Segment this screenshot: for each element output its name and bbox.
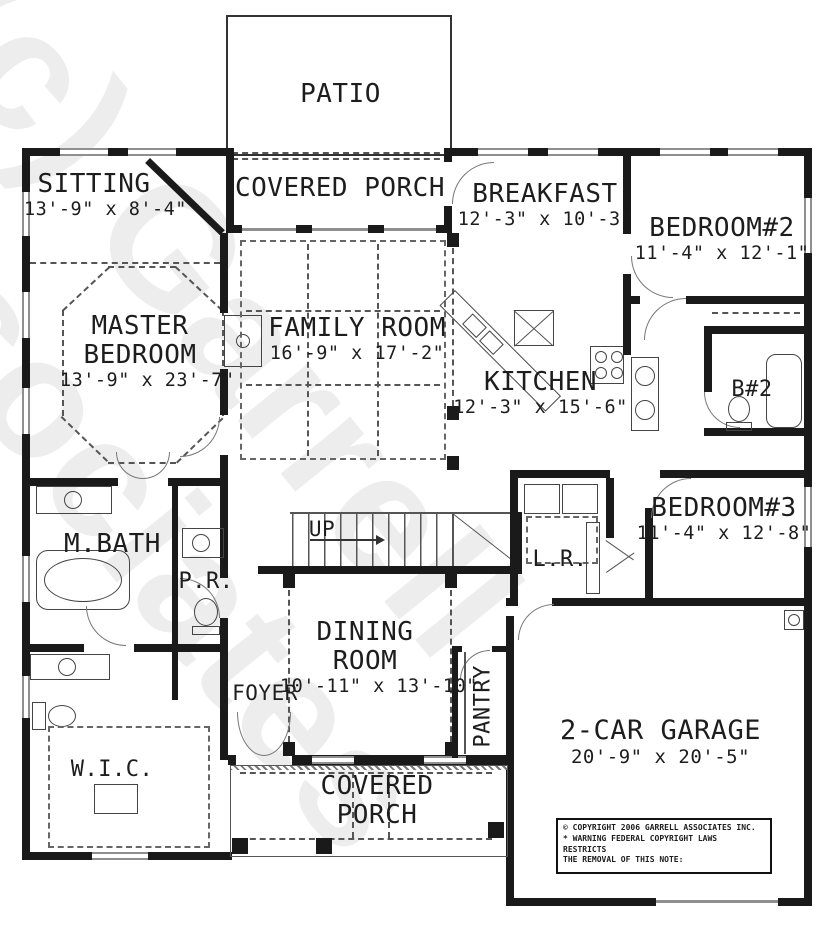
wall bbox=[631, 296, 640, 304]
room-label-breakfast: BREAKFAST12'-3" x 10'-3" bbox=[455, 180, 635, 231]
porch-edge-dash bbox=[232, 152, 450, 154]
window bbox=[22, 292, 30, 338]
stair-direction-arrow bbox=[376, 535, 385, 545]
column bbox=[447, 233, 459, 247]
window bbox=[478, 148, 528, 156]
wic-island bbox=[94, 784, 138, 814]
wall bbox=[686, 296, 805, 304]
wall bbox=[22, 478, 118, 486]
toilet bbox=[194, 598, 218, 626]
column bbox=[447, 456, 459, 470]
wall bbox=[704, 334, 712, 392]
sink bbox=[635, 366, 655, 386]
wall bbox=[552, 598, 812, 606]
room-label-sitting: SITTING13'-9" x 8'-4" bbox=[24, 170, 164, 221]
room-label-covered-porch-top: COVERED PORCH bbox=[230, 174, 450, 203]
wall bbox=[220, 618, 228, 760]
toilet bbox=[48, 705, 76, 727]
sink bbox=[192, 534, 210, 552]
room-label-family-room: FAMILY ROOM16'-9" x 17'-2" bbox=[252, 314, 462, 365]
garage-fixture bbox=[788, 614, 800, 626]
window bbox=[660, 148, 710, 156]
toilet bbox=[32, 702, 46, 730]
wall bbox=[22, 148, 30, 860]
copyright-line: THE REMOVAL OF THIS NOTE: bbox=[563, 855, 765, 866]
wall bbox=[704, 428, 805, 436]
column bbox=[226, 225, 242, 233]
porch-dash bbox=[240, 838, 492, 840]
room-label-patio: PATIO bbox=[283, 80, 398, 109]
floor-plan: (c) Garrell Associates bbox=[0, 0, 834, 931]
room-label-laundry: L.R. bbox=[528, 548, 592, 573]
french-door bbox=[242, 228, 296, 231]
sink bbox=[635, 400, 655, 420]
room-label-dining: DINING ROOM10'-11" x 13'-10" bbox=[280, 618, 450, 698]
door-arc bbox=[644, 298, 686, 340]
window bbox=[92, 852, 148, 860]
wall bbox=[506, 598, 518, 606]
bathtub bbox=[44, 558, 122, 602]
washer-dryer bbox=[562, 484, 598, 514]
room-label-bath2: B#2 bbox=[722, 378, 782, 403]
column bbox=[296, 225, 312, 233]
wall bbox=[258, 566, 522, 574]
window bbox=[312, 756, 354, 764]
kitchen-sink bbox=[479, 330, 504, 355]
wall bbox=[510, 478, 518, 598]
wall bbox=[452, 646, 458, 758]
wall bbox=[506, 898, 656, 906]
room-label-pantry: PANTRY bbox=[472, 646, 497, 766]
wall bbox=[22, 644, 84, 652]
room-label-foyer: FOYER bbox=[232, 682, 298, 706]
garage-door-line bbox=[656, 900, 778, 903]
window bbox=[22, 676, 30, 718]
door-chevron bbox=[605, 540, 633, 560]
tray-ceiling-dash bbox=[108, 266, 176, 268]
stairs-up-label: UP bbox=[300, 518, 344, 542]
wall bbox=[623, 293, 631, 355]
range-burner bbox=[611, 351, 623, 363]
wall bbox=[704, 326, 805, 334]
room-label-kitchen: KITCHEN12'-3" x 15'-6" bbox=[448, 368, 633, 419]
window bbox=[424, 756, 466, 764]
kitchen-sink bbox=[462, 313, 487, 338]
wall bbox=[660, 470, 805, 478]
room-label-powder-room: P.R. bbox=[178, 570, 234, 595]
window bbox=[60, 148, 108, 156]
stair-edge bbox=[452, 514, 454, 566]
room-label-bedroom3: BEDROOM#311'-4" x 12'-8" bbox=[634, 494, 814, 545]
room-label-garage: 2-CAR GARAGE20'-9" x 20'-5" bbox=[538, 716, 783, 769]
column bbox=[445, 574, 457, 588]
coffered-ceiling-dash bbox=[246, 310, 440, 312]
sink bbox=[64, 491, 82, 509]
room-label-master-bath: M.BATH bbox=[40, 530, 185, 559]
wall bbox=[606, 478, 614, 538]
copyright-line: © COPYRIGHT 2006 GARRELL ASSOCIATES INC. bbox=[563, 823, 765, 834]
range-burner bbox=[595, 351, 607, 363]
copyright-line: * WARNING FEDERAL COPYRIGHT LAWS RESTRIC… bbox=[563, 834, 765, 856]
toilet bbox=[192, 626, 220, 635]
closet-shelf-dash bbox=[712, 312, 800, 314]
wall bbox=[220, 233, 228, 313]
french-door bbox=[384, 228, 436, 231]
window bbox=[128, 148, 176, 156]
french-door bbox=[312, 228, 368, 231]
room-label-master-bedroom: MASTER BEDROOM13'-9" x 23'-7" bbox=[60, 312, 220, 392]
column bbox=[283, 742, 295, 756]
wall bbox=[510, 470, 610, 478]
coffered-ceiling-dash bbox=[246, 384, 440, 386]
room-label-bedroom2: BEDROOM#211'-4" x 12'-1" bbox=[632, 214, 812, 265]
sink bbox=[58, 658, 76, 676]
wall bbox=[228, 755, 236, 765]
room-label-covered-porch-bottom: COVERED PORCH bbox=[302, 772, 452, 830]
window bbox=[22, 388, 30, 434]
wall bbox=[134, 644, 228, 652]
washer-dryer bbox=[524, 484, 560, 514]
sitting-divider-dash bbox=[30, 262, 220, 264]
copyright-notice: © COPYRIGHT 2006 GARRELL ASSOCIATES INC.… bbox=[556, 818, 772, 874]
pantry-shelf bbox=[464, 652, 466, 754]
door-chevron bbox=[606, 552, 634, 572]
window bbox=[22, 556, 30, 602]
toilet bbox=[726, 422, 752, 431]
wall bbox=[22, 148, 228, 156]
column bbox=[232, 838, 248, 854]
window bbox=[728, 148, 778, 156]
porch-edge-dash bbox=[232, 158, 450, 160]
column bbox=[488, 822, 504, 838]
door-arc bbox=[86, 606, 126, 646]
column bbox=[316, 838, 332, 854]
column bbox=[283, 574, 295, 588]
window bbox=[548, 148, 598, 156]
wall bbox=[778, 898, 812, 906]
column bbox=[436, 225, 452, 233]
wall bbox=[452, 646, 462, 652]
column bbox=[368, 225, 384, 233]
room-label-wic: W.I.C. bbox=[62, 758, 162, 783]
wall bbox=[168, 478, 228, 486]
